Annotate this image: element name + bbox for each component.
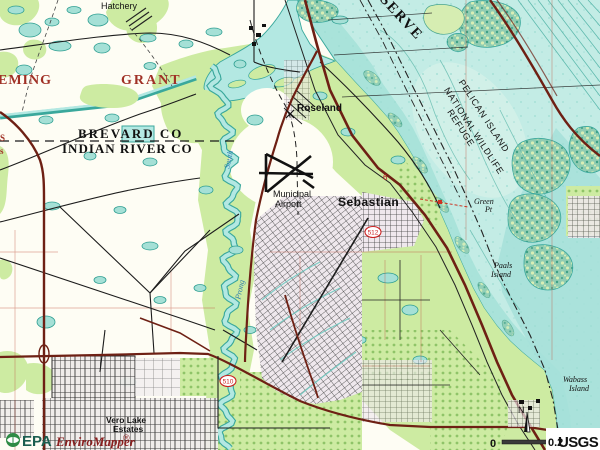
svg-text:0: 0 (490, 438, 496, 450)
svg-text:USGS: USGS (558, 434, 599, 450)
svg-text:BREVARD CO: BREVARD CO (78, 126, 183, 141)
svg-text:Island: Island (490, 270, 512, 279)
svg-text:®: ® (123, 433, 130, 443)
svg-text:510: 510 (223, 379, 234, 386)
svg-text:N: N (518, 405, 525, 415)
svg-text:Airport: Airport (275, 199, 302, 209)
svg-text:INDIAN RIVER CO: INDIAN RIVER CO (62, 141, 193, 156)
svg-text:Sebastian: Sebastian (338, 195, 399, 209)
svg-text:6: 6 (383, 173, 388, 182)
svg-text:S: S (0, 133, 5, 143)
svg-text:EPA: EPA (22, 433, 52, 450)
svg-text:Island: Island (568, 384, 590, 393)
svg-text:Pt: Pt (484, 205, 493, 214)
svg-text:GRANT: GRANT (121, 73, 182, 88)
svg-text:Hatchery: Hatchery (101, 1, 138, 11)
svg-text:Roseland: Roseland (297, 103, 342, 114)
svg-text:512: 512 (368, 230, 379, 237)
svg-text:Wabass: Wabass (563, 375, 587, 384)
svg-text:EMING: EMING (0, 73, 52, 88)
svg-text:Municipal: Municipal (273, 189, 311, 199)
svg-text:s: s (0, 146, 4, 156)
svg-text:Paals: Paals (493, 261, 512, 270)
